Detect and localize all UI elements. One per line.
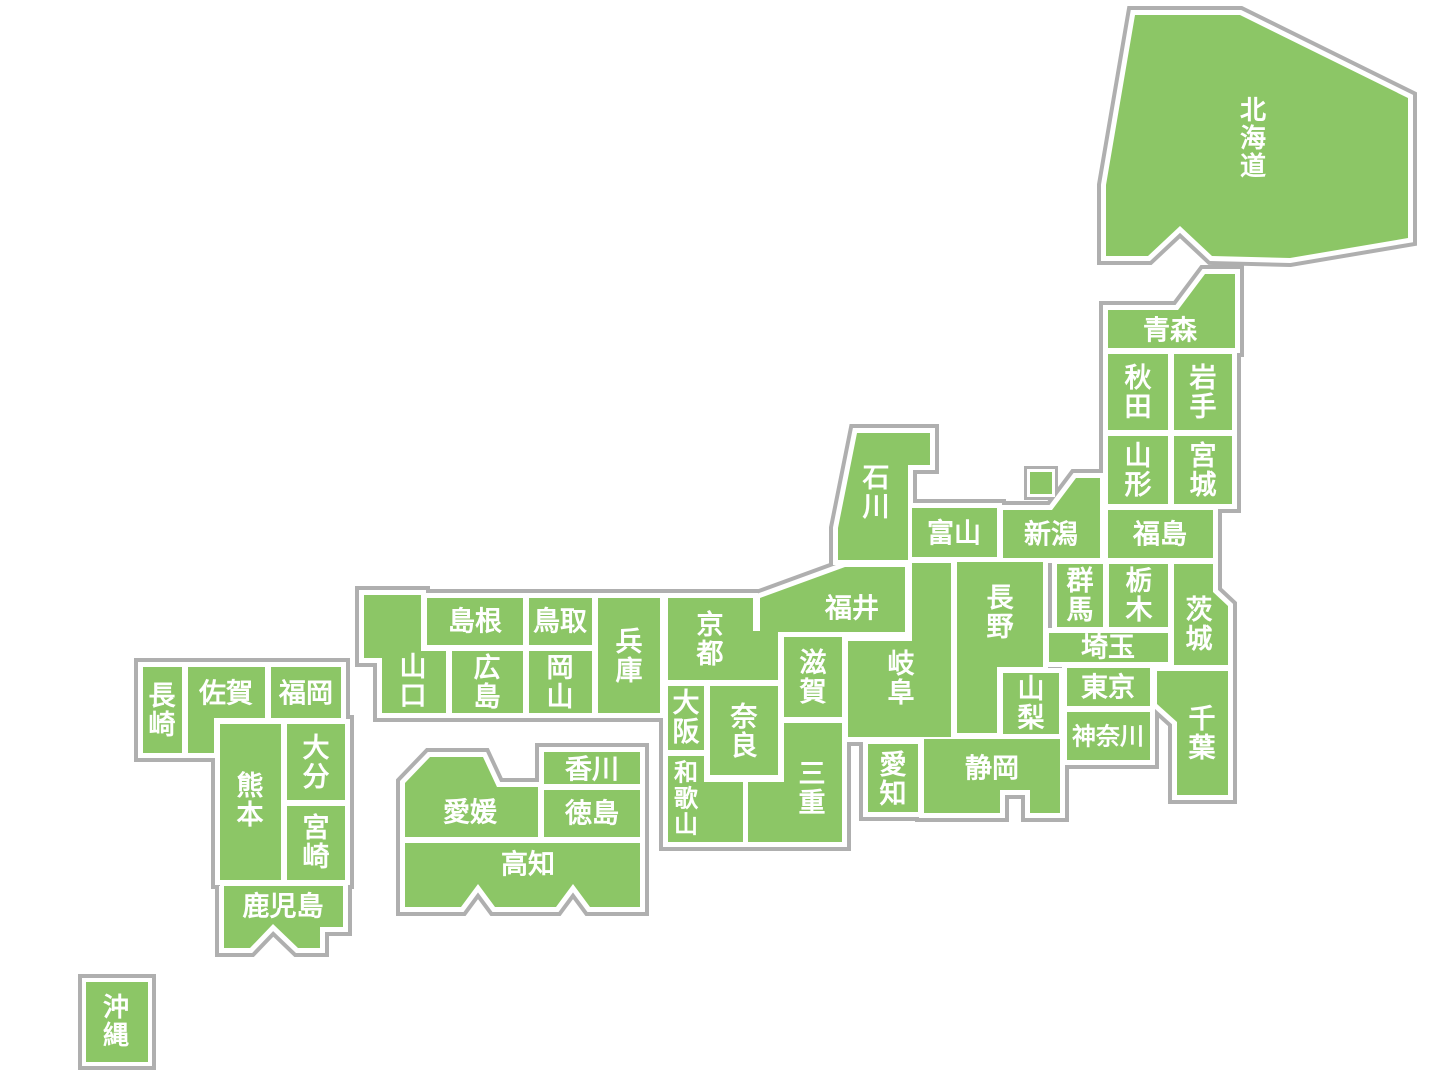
label-ehime: 愛媛 — [443, 797, 498, 828]
label-hiroshima: 広島 — [474, 652, 501, 713]
label-kumamoto: 熊本 — [237, 770, 264, 831]
label-osaka: 大阪 — [673, 688, 700, 748]
label-kanagawa: 神奈川 — [1072, 722, 1144, 750]
label-okayama: 岡山 — [547, 653, 574, 713]
label-nagano: 長野 — [987, 583, 1015, 643]
label-miyazaki: 宮崎 — [303, 812, 330, 873]
label-okinawa: 沖縄 — [103, 993, 129, 1051]
label-gifu: 岐阜 — [888, 649, 915, 709]
label-kyoto: 京都 — [696, 609, 724, 670]
japan-map-canvas: 北海道青森秋田岩手山形宮城福島新潟群馬栃木茨城埼玉東京神奈川千葉長野山梨富山石川… — [0, 0, 1440, 1080]
label-chiba: 千葉 — [1188, 704, 1217, 764]
label-oita: 大分 — [303, 733, 330, 793]
label-kochi: 高知 — [501, 848, 555, 880]
label-aichi: 愛知 — [880, 750, 907, 810]
label-akita: 秋田 — [1125, 363, 1152, 423]
label-gunma: 群馬 — [1067, 566, 1094, 626]
label-yamagata: 山形 — [1125, 441, 1152, 501]
label-hyogo: 兵庫 — [616, 627, 643, 687]
label-nagasaki: 長崎 — [149, 681, 177, 741]
label-tochigi: 栃木 — [1125, 566, 1153, 626]
japan-map: 北海道青森秋田岩手山形宮城福島新潟群馬栃木茨城埼玉東京神奈川千葉長野山梨富山石川… — [0, 0, 1440, 1080]
label-niigata: 新潟 — [1024, 518, 1078, 550]
label-hokkaido: 北海道 — [1240, 96, 1266, 182]
label-tokyo: 東京 — [1081, 671, 1135, 703]
prefecture-label-layer: 北海道青森秋田岩手山形宮城福島新潟群馬栃木茨城埼玉東京神奈川千葉長野山梨富山石川… — [103, 96, 1266, 1051]
label-nara: 奈良 — [730, 702, 759, 762]
label-saitama: 埼玉 — [1081, 632, 1135, 663]
label-kagoshima: 鹿児島 — [243, 890, 324, 922]
label-wakayama: 和歌山 — [674, 758, 699, 838]
label-ishikawa: 石川 — [862, 463, 890, 523]
label-kagawa: 香川 — [565, 754, 619, 785]
label-fukui: 福井 — [824, 593, 879, 624]
label-ibaraki: 茨城 — [1186, 595, 1213, 655]
label-shimane: 島根 — [448, 606, 502, 637]
label-saga: 佐賀 — [198, 678, 253, 709]
prefecture-sado[interactable] — [1030, 472, 1052, 494]
label-aomori: 青森 — [1143, 315, 1198, 346]
label-shiga: 滋賀 — [800, 648, 827, 708]
label-tottori: 鳥取 — [533, 606, 587, 637]
label-toyama: 富山 — [927, 517, 981, 549]
label-fukushima: 福島 — [1132, 519, 1187, 550]
label-fukuoka: 福岡 — [278, 678, 333, 709]
label-yamaguchi: 山口 — [400, 652, 427, 712]
label-shizuoka: 静岡 — [965, 753, 1019, 784]
label-yamanashi: 山梨 — [1018, 674, 1045, 734]
label-tokushima: 徳島 — [564, 798, 619, 829]
label-mie: 三重 — [799, 759, 826, 819]
label-miyagi: 宮城 — [1190, 440, 1217, 501]
label-iwate: 岩手 — [1189, 363, 1217, 423]
